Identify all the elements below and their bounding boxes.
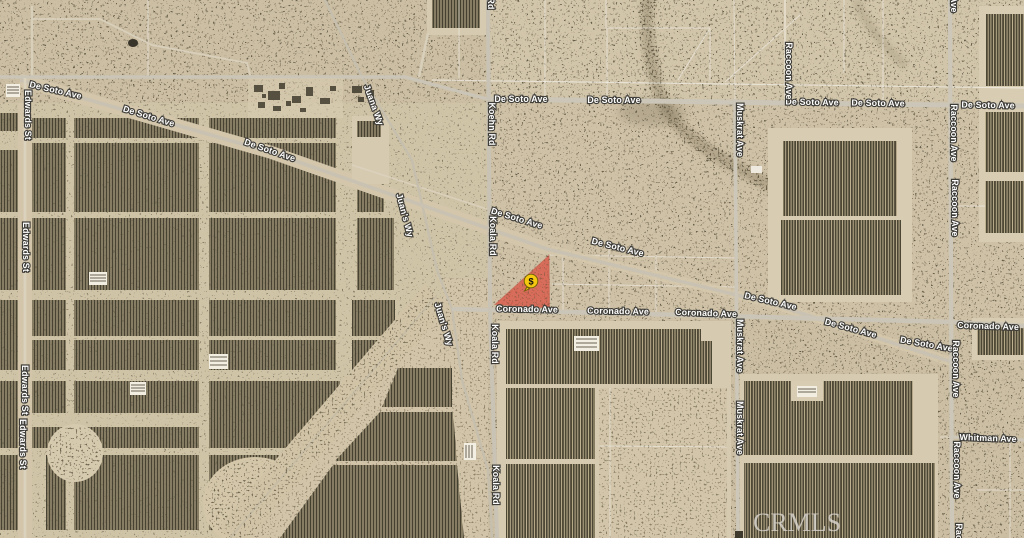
svg-text:Edwards St: Edwards St — [18, 419, 28, 469]
svg-text:Muskrat Ave: Muskrat Ave — [735, 319, 745, 373]
svg-text:Coronado Ave: Coronado Ave — [496, 303, 558, 314]
svg-text:De Soto Ave: De Soto Ave — [494, 94, 547, 104]
svg-text:Raccoon Ave: Raccoon Ave — [949, 104, 959, 161]
svg-text:CRMLS: CRMLS — [753, 508, 841, 537]
svg-text:$: $ — [528, 277, 533, 287]
svg-text:Koehn Rd: Koehn Rd — [486, 0, 496, 10]
svg-text:Edwards St: Edwards St — [23, 90, 33, 140]
svg-text:Raccoon Ave: Raccoon Ave — [949, 0, 959, 13]
svg-text:Koala Rd: Koala Rd — [488, 216, 498, 256]
svg-text:Koala Rd: Koala Rd — [490, 324, 500, 364]
svg-text:Raccoon Ave: Raccoon Ave — [951, 340, 961, 397]
svg-text:Raccoon Ave: Raccoon Ave — [952, 441, 962, 498]
svg-text:Muskrat Ave: Muskrat Ave — [735, 401, 745, 455]
svg-text:Koala Rd: Koala Rd — [491, 465, 501, 505]
svg-text:Whitman Ave: Whitman Ave — [959, 432, 1017, 444]
svg-text:Edwards St: Edwards St — [21, 222, 31, 272]
svg-text:De Soto Ave: De Soto Ave — [961, 100, 1015, 111]
svg-text:Muskrat Ave: Muskrat Ave — [735, 103, 745, 157]
svg-text:Coronado Ave: Coronado Ave — [587, 305, 649, 316]
svg-text:Raccoon Ave: Raccoon Ave — [950, 179, 960, 236]
svg-text:De Soto Ave: De Soto Ave — [587, 95, 640, 105]
svg-text:De Soto Ave: De Soto Ave — [851, 98, 905, 109]
svg-text:Raccoon Ave: Raccoon Ave — [954, 523, 964, 538]
svg-text:Edwards St: Edwards St — [20, 365, 30, 415]
svg-text:Koehn Rd: Koehn Rd — [487, 102, 497, 145]
svg-text:Raccoon Ave: Raccoon Ave — [784, 42, 794, 99]
